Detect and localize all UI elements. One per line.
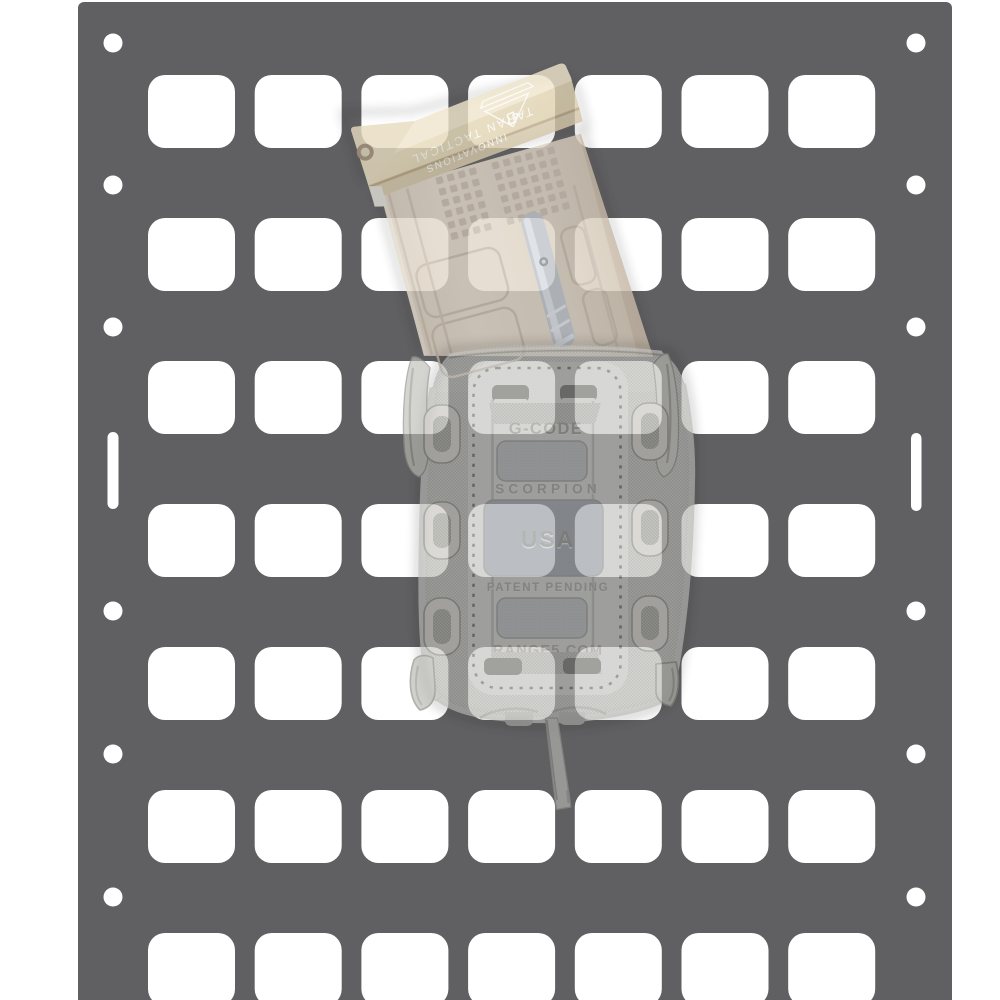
svg-text:USA: USA (521, 526, 576, 552)
svg-text:G-CODE: G-CODE (509, 420, 583, 438)
svg-text:PATENT PENDING: PATENT PENDING (487, 582, 609, 594)
svg-text:SCORPION: SCORPION (495, 482, 601, 497)
